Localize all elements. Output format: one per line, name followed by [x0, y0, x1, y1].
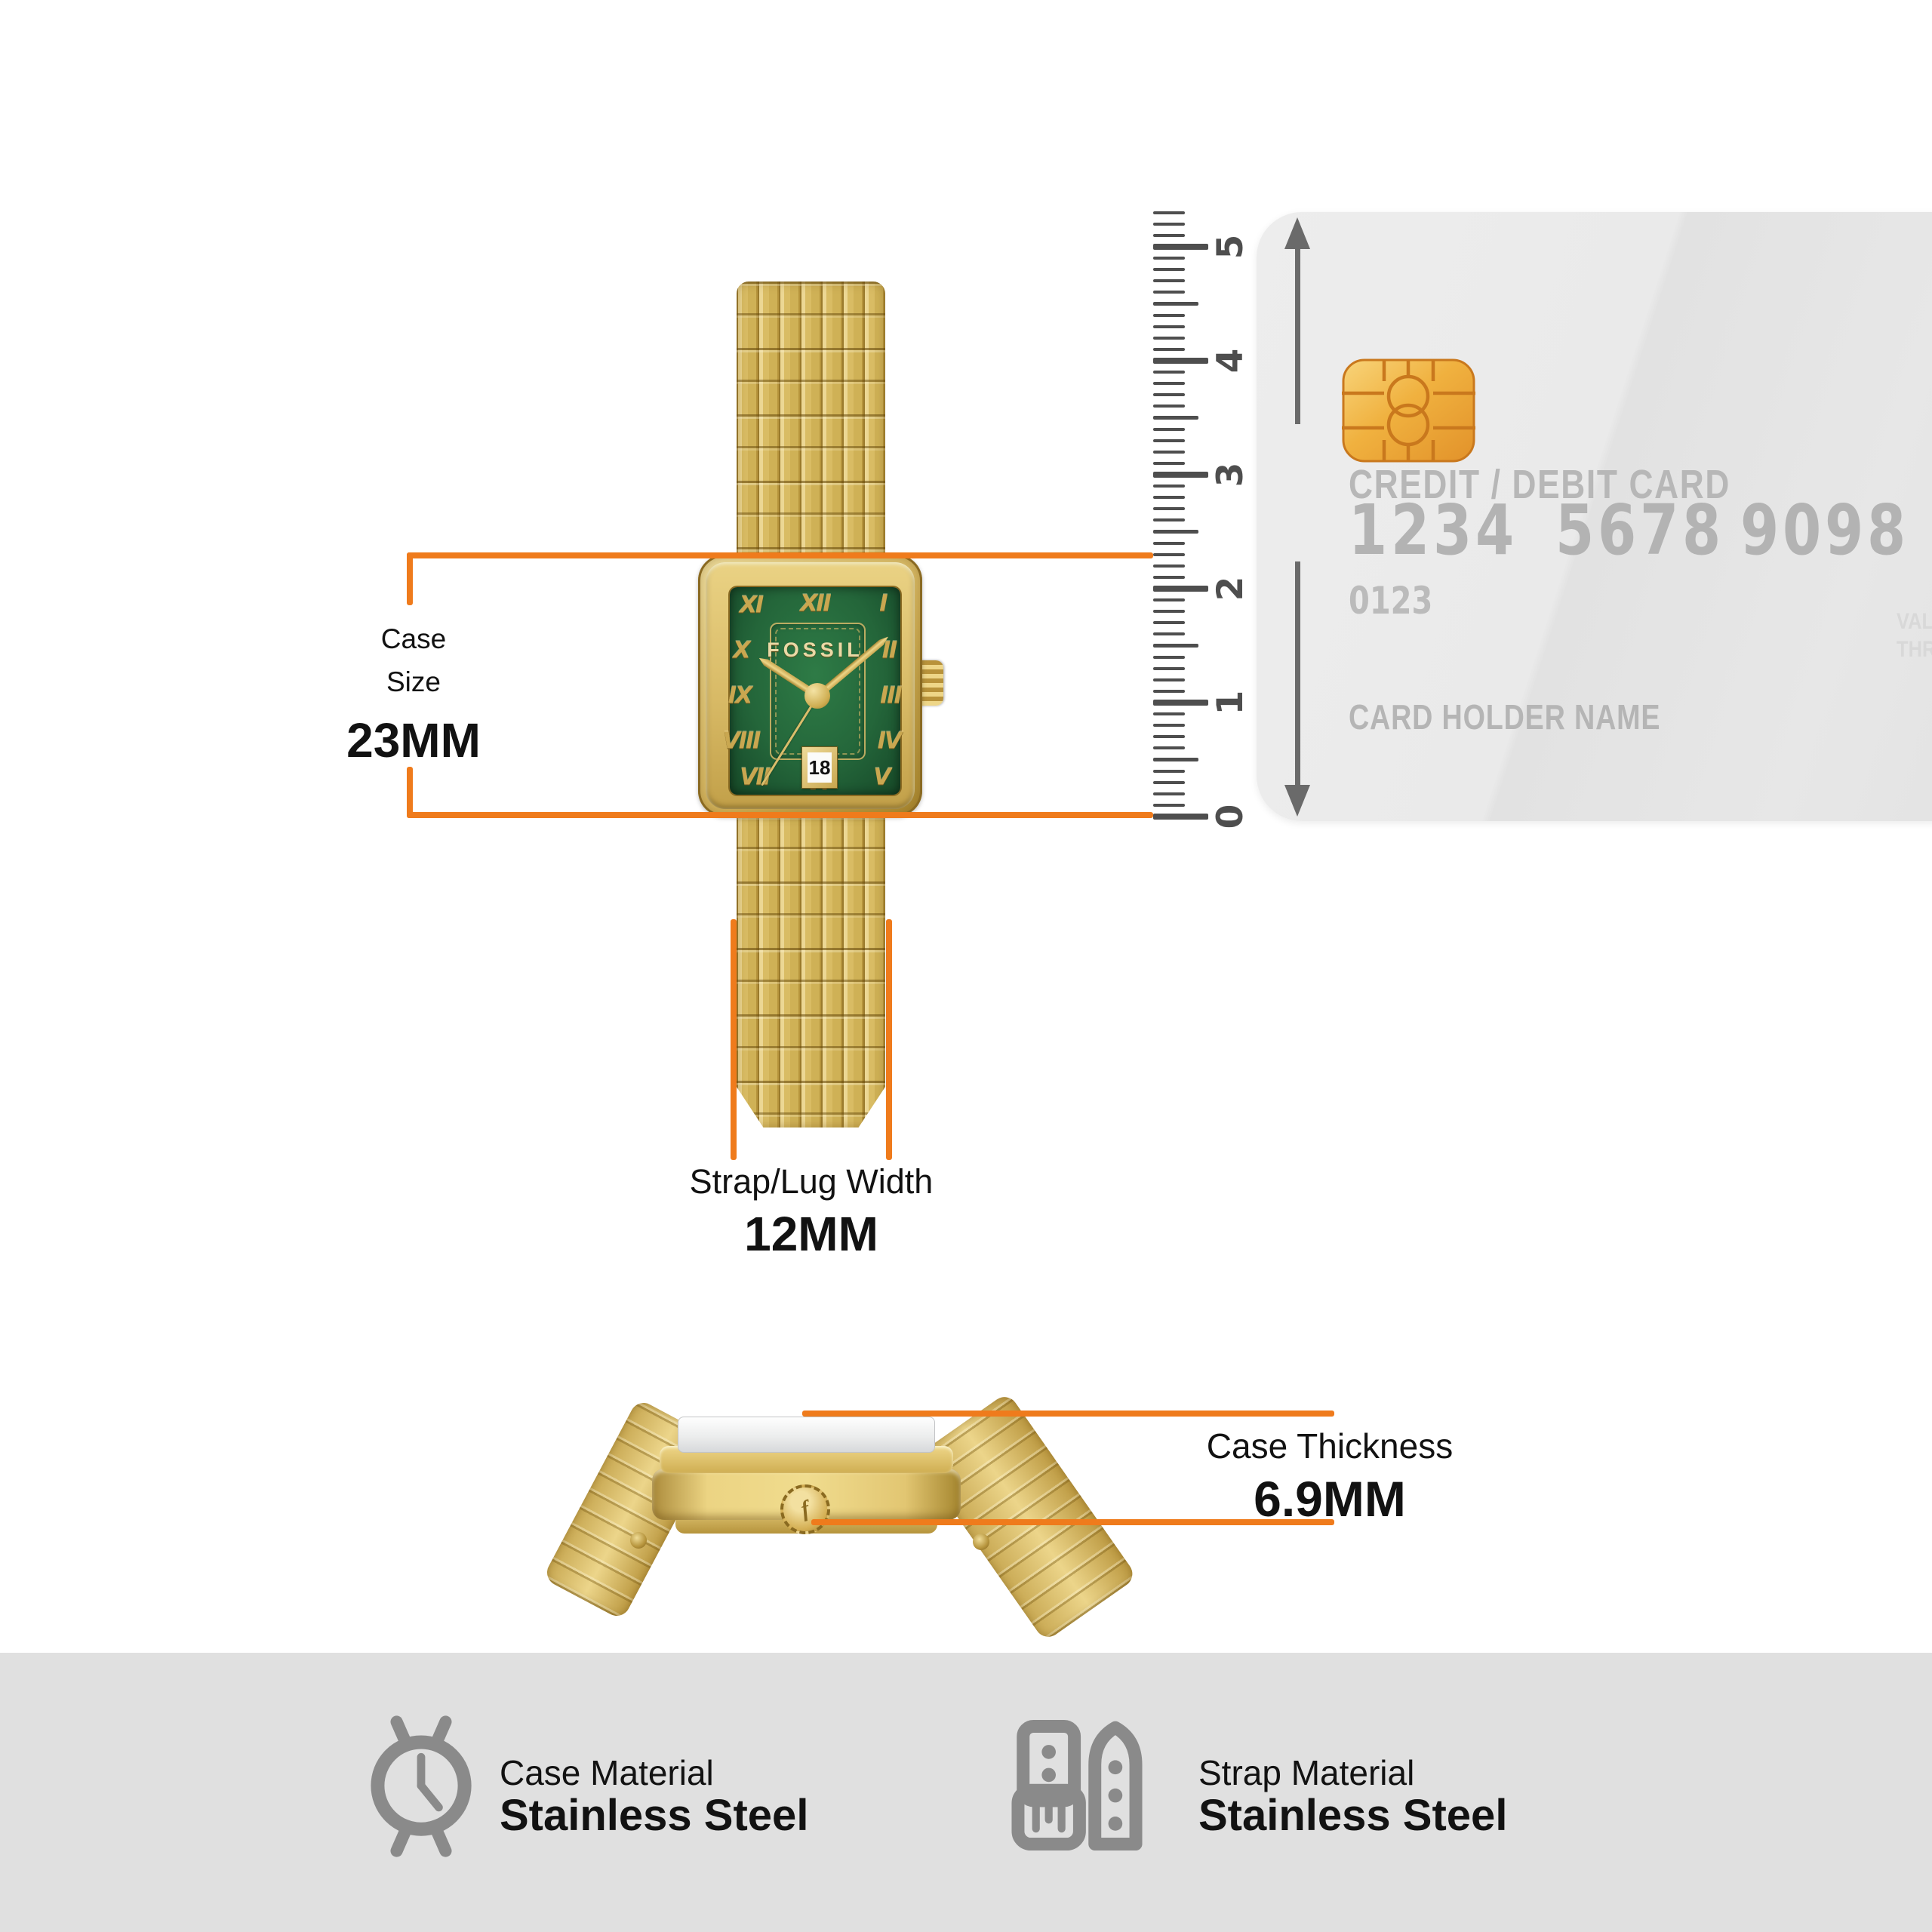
ruler-number: 4	[1207, 338, 1253, 383]
card-height-arrow-upper	[1295, 234, 1300, 424]
ruler-tick	[1153, 770, 1185, 773]
side-crystal	[678, 1417, 935, 1453]
ruler-tick	[1153, 428, 1185, 431]
dial-numeral-12: XII	[800, 591, 829, 617]
dial-numeral-10: X	[733, 638, 749, 664]
case-size-value: 23MM	[325, 712, 503, 768]
ruler-tick	[1153, 371, 1185, 374]
card-number-group-1: 1234	[1349, 490, 1518, 571]
card-code: 0123	[1349, 579, 1432, 623]
ruler-tick	[1153, 382, 1185, 385]
side-lug-pin-right	[973, 1534, 989, 1550]
ruler-tick	[1153, 792, 1185, 795]
ruler-tick	[1153, 712, 1185, 715]
dial-numeral-5: V	[873, 764, 889, 791]
ruler-tick	[1153, 690, 1185, 693]
ruler-tick	[1153, 507, 1185, 510]
strap-width-value: 12MM	[649, 1206, 974, 1262]
ruler-tick	[1153, 211, 1185, 214]
ruler-tick	[1153, 485, 1185, 488]
ruler-major-tick	[1153, 814, 1208, 820]
ruler-tick	[1153, 804, 1185, 807]
ruler-major-tick	[1153, 586, 1208, 592]
ruler-tick	[1153, 542, 1185, 545]
ruler-tick	[1153, 393, 1185, 396]
card-valid-thru-text: VAL THR	[1897, 608, 1932, 663]
strap-width-left-line	[731, 919, 737, 1160]
case-size-vertical-stub-bottom	[407, 767, 413, 818]
arrow-head-down-icon	[1284, 785, 1310, 817]
dial-numeral-9: IX	[728, 683, 751, 709]
ruler-major-tick	[1153, 700, 1208, 706]
ruler-tick	[1153, 462, 1185, 465]
ruler-tick	[1153, 496, 1185, 499]
watch-dial: FOSSIL XII XI I X II IX III VIII IV VII …	[730, 587, 900, 795]
side-crown: f	[780, 1484, 830, 1534]
card-holder-label: CARD HOLDER NAME	[1349, 697, 1660, 737]
ruler-tick	[1153, 598, 1185, 601]
ruler-major-tick	[1153, 358, 1208, 364]
dial-numeral-1: I	[879, 591, 886, 617]
case-size-label-line2: Size	[325, 666, 503, 698]
watch-bracelet-top	[737, 281, 885, 556]
ruler-tick	[1153, 518, 1185, 521]
watch-bezel: FOSSIL XII XI I X II IX III VIII IV VII …	[706, 562, 915, 809]
strap-width-label: Strap/Lug Width	[649, 1162, 974, 1201]
ruler-tick	[1153, 257, 1185, 260]
dial-numeral-4: IV	[878, 728, 900, 755]
strap-material-value: Stainless Steel	[1198, 1790, 1507, 1841]
ruler-tick	[1153, 302, 1198, 306]
ruler-tick	[1153, 416, 1198, 420]
strap-width-right-line	[886, 919, 892, 1160]
ruler-tick	[1153, 644, 1198, 648]
thickness-top-line	[802, 1411, 1334, 1417]
ruler-tick	[1153, 223, 1185, 226]
hands-center-cap	[804, 683, 830, 709]
credit-card: CREDIT / DEBIT CARD 1234 5678 9098 0123 …	[1257, 212, 1932, 821]
footer-band: Case Material Stainless Steel Strap Mate…	[0, 1653, 1932, 1932]
arrow-head-up-icon	[1284, 217, 1310, 249]
case-size-vertical-stub-top	[407, 552, 413, 605]
ruler-tick	[1153, 656, 1185, 659]
card-number-group-2: 5678	[1555, 490, 1724, 571]
ruler-tick	[1153, 632, 1185, 635]
ruler-tick	[1153, 325, 1185, 328]
ruler-tick	[1153, 314, 1185, 317]
ruler-tick	[1153, 610, 1185, 613]
watch-bracelet-bottom	[737, 815, 885, 1128]
dial-numeral-11: XI	[740, 592, 762, 619]
ruler-tick	[1153, 746, 1185, 749]
ruler-tick	[1153, 268, 1185, 271]
ruler-number: 0	[1207, 794, 1253, 839]
side-lug-pin-left	[630, 1532, 647, 1549]
strap-icon	[1005, 1712, 1149, 1859]
ruler-tick	[1153, 451, 1185, 454]
ruler-tick	[1153, 621, 1185, 624]
ruler-tick	[1153, 337, 1185, 340]
ruler-tick	[1153, 348, 1185, 351]
watch-crown	[919, 660, 943, 706]
ruler-tick	[1153, 279, 1185, 282]
case-material-label: Case Material	[500, 1752, 714, 1793]
date-window: 18	[801, 746, 838, 789]
case-size-top-line	[407, 552, 1153, 558]
ruler-tick	[1153, 553, 1185, 556]
ruler-number: 5	[1207, 224, 1253, 269]
watch-case-icon	[353, 1715, 489, 1858]
ruler-major-tick	[1153, 472, 1208, 478]
ruler-number: 2	[1207, 566, 1253, 611]
ruler-tick	[1153, 565, 1185, 568]
date-value: 18	[808, 752, 832, 783]
case-size-bottom-line	[407, 812, 1153, 818]
ruler-tick	[1153, 234, 1185, 237]
ruler-major-tick	[1153, 244, 1208, 250]
thickness-bottom-line	[811, 1519, 1334, 1525]
ruler-tick	[1153, 576, 1185, 579]
crown-logo-icon: f	[798, 1496, 812, 1522]
ruler-tick	[1153, 530, 1198, 534]
ruler-tick	[1153, 724, 1185, 727]
ruler-tick	[1153, 781, 1185, 784]
infographic-canvas: FOSSIL XII XI I X II IX III VIII IV VII …	[0, 0, 1932, 1932]
card-chip-icon	[1342, 358, 1475, 463]
ruler-tick	[1153, 291, 1185, 294]
strap-material-label: Strap Material	[1198, 1752, 1414, 1793]
ruler-number: 1	[1207, 680, 1253, 725]
ruler-tick	[1153, 405, 1185, 408]
ruler-tick	[1153, 678, 1185, 681]
ruler-tick	[1153, 667, 1185, 670]
ruler-tick	[1153, 758, 1198, 761]
dial-numeral-8: VIII	[723, 728, 760, 755]
ruler-tick	[1153, 439, 1185, 442]
ruler-number: 3	[1207, 452, 1253, 497]
card-number-group-3: 9098	[1740, 490, 1909, 571]
case-size-label-line1: Case	[325, 623, 503, 655]
case-material-value: Stainless Steel	[500, 1790, 808, 1841]
dial-numeral-3: III	[880, 683, 901, 709]
ruler-tick	[1153, 735, 1185, 738]
card-height-arrow-lower	[1295, 561, 1300, 785]
watch-case: FOSSIL XII XI I X II IX III VIII IV VII …	[698, 555, 922, 817]
case-thickness-label: Case Thickness	[1179, 1426, 1481, 1466]
